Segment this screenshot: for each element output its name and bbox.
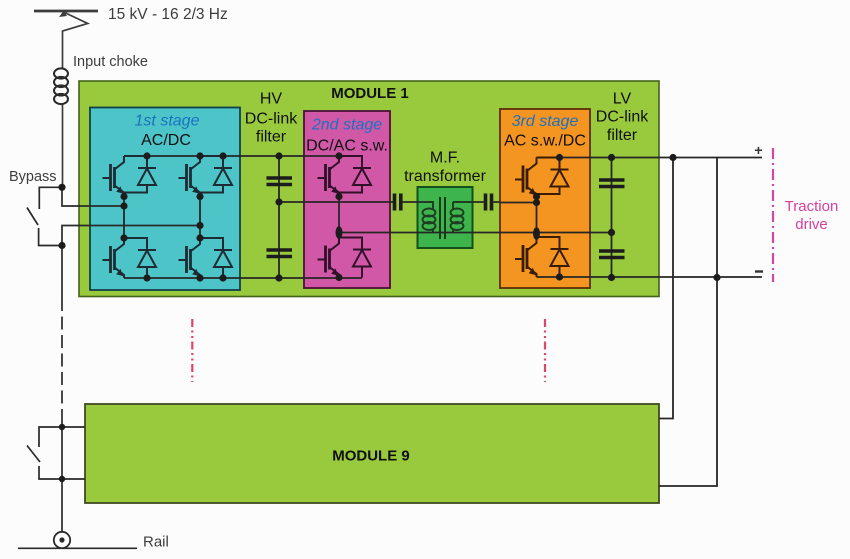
- svg-text:Bypass: Bypass: [9, 169, 57, 185]
- svg-text:DC-link: DC-link: [596, 109, 649, 126]
- svg-text:15 kV - 16 2/3 Hz: 15 kV - 16 2/3 Hz: [108, 6, 228, 23]
- svg-text:DC/AC s.w.: DC/AC s.w.: [306, 138, 388, 155]
- svg-text:MODULE 1: MODULE 1: [331, 85, 409, 102]
- svg-text:2nd stage: 2nd stage: [311, 117, 382, 134]
- svg-text:transformer: transformer: [404, 168, 486, 185]
- svg-text:AC s.w./DC: AC s.w./DC: [504, 133, 586, 150]
- svg-text:DC-link: DC-link: [245, 111, 298, 128]
- svg-text:filter: filter: [607, 127, 638, 144]
- svg-text:M.F.: M.F.: [430, 150, 460, 167]
- svg-text:1st stage: 1st stage: [135, 113, 200, 130]
- svg-text:HV: HV: [260, 91, 283, 108]
- svg-text:drive: drive: [795, 216, 828, 233]
- svg-text:Rail: Rail: [143, 534, 169, 551]
- svg-text:Input choke: Input choke: [73, 54, 148, 70]
- svg-text:+: +: [754, 142, 762, 158]
- svg-text:Traction: Traction: [785, 198, 839, 215]
- svg-text:AC/DC: AC/DC: [141, 132, 191, 149]
- svg-text:filter: filter: [256, 129, 287, 146]
- svg-text:3rd stage: 3rd stage: [512, 113, 579, 130]
- svg-text:LV: LV: [613, 91, 632, 108]
- svg-text:MODULE 9: MODULE 9: [332, 448, 410, 465]
